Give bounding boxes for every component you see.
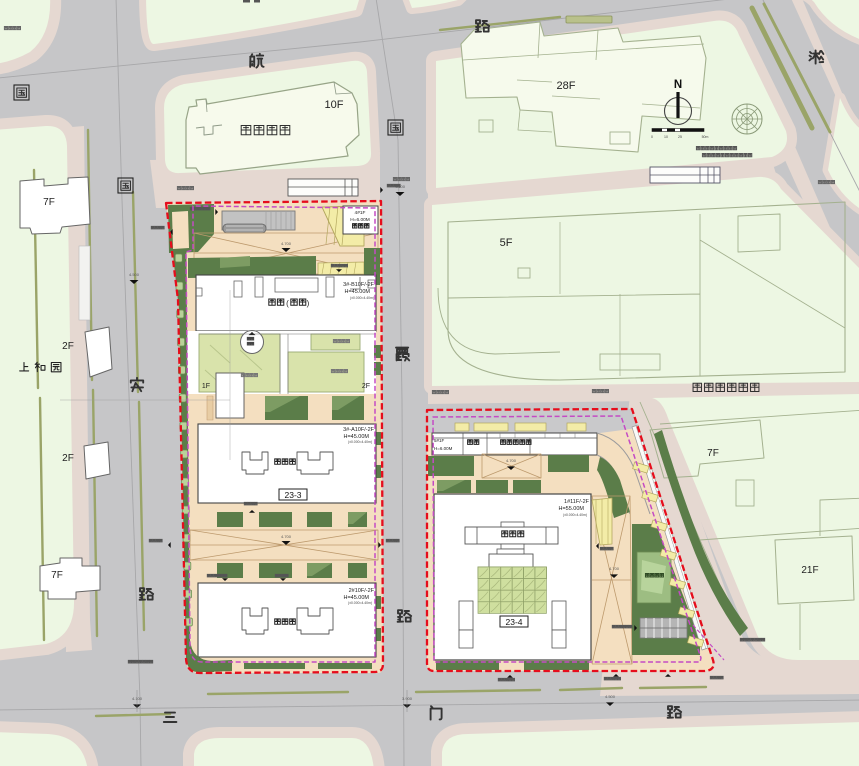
svg-text:7F: 7F bbox=[43, 197, 55, 208]
svg-text:4.100: 4.100 bbox=[132, 696, 143, 701]
svg-text:4#1F: 4#1F bbox=[355, 210, 366, 216]
svg-text:H=6.00M: H=6.00M bbox=[350, 217, 370, 223]
svg-text:4.500: 4.500 bbox=[129, 272, 140, 277]
svg-text:4.500: 4.500 bbox=[395, 184, 406, 189]
svg-text:(: ( bbox=[286, 299, 289, 308]
svg-text:2F: 2F bbox=[62, 453, 74, 464]
svg-text:2F: 2F bbox=[62, 341, 74, 352]
svg-text:4.700: 4.700 bbox=[281, 534, 292, 539]
svg-text:H=55.00M: H=55.00M bbox=[558, 506, 584, 512]
svg-text:23-4: 23-4 bbox=[505, 617, 522, 627]
svg-text:5F: 5F bbox=[500, 237, 513, 249]
svg-text:(±0.000=4.40m): (±0.000=4.40m) bbox=[348, 440, 372, 444]
svg-text:0: 0 bbox=[651, 135, 653, 139]
svg-text:3#-B10F/-2F: 3#-B10F/-2F bbox=[343, 282, 375, 288]
svg-text:28F: 28F bbox=[557, 80, 576, 92]
svg-text:1#11F/-2F: 1#11F/-2F bbox=[564, 499, 590, 505]
svg-text:(±0.000=4.40m): (±0.000=4.40m) bbox=[350, 296, 374, 300]
svg-text:10: 10 bbox=[664, 135, 668, 139]
svg-text:3.900: 3.900 bbox=[402, 696, 413, 701]
svg-text:4.500: 4.500 bbox=[605, 694, 616, 699]
svg-text:7F: 7F bbox=[51, 570, 63, 581]
svg-text:4.700: 4.700 bbox=[281, 241, 292, 246]
svg-text:H=45.00M: H=45.00M bbox=[344, 289, 370, 295]
svg-text:2#10F/-2F: 2#10F/-2F bbox=[349, 588, 375, 594]
svg-text:4.700: 4.700 bbox=[506, 458, 517, 463]
svg-text:(±0.000=4.40m): (±0.000=4.40m) bbox=[563, 513, 587, 517]
svg-text:4.700: 4.700 bbox=[609, 566, 620, 571]
svg-text:23-3: 23-3 bbox=[284, 490, 301, 500]
svg-text:5#1F: 5#1F bbox=[434, 438, 445, 443]
svg-text:25: 25 bbox=[678, 135, 682, 139]
svg-text:N: N bbox=[674, 79, 682, 91]
svg-text:): ) bbox=[307, 299, 310, 308]
svg-text:2F: 2F bbox=[362, 383, 370, 390]
svg-text:50m: 50m bbox=[702, 135, 709, 139]
svg-text:21F: 21F bbox=[801, 565, 818, 576]
svg-text:3#-A10F/-2F: 3#-A10F/-2F bbox=[343, 427, 375, 433]
svg-text:(±0.000=4.40m): (±0.000=4.40m) bbox=[348, 601, 372, 605]
svg-text:1F: 1F bbox=[202, 383, 210, 390]
svg-text:10F: 10F bbox=[325, 99, 344, 111]
svg-text:7F: 7F bbox=[707, 448, 719, 459]
svg-text:H=6.00M: H=6.00M bbox=[434, 446, 453, 451]
